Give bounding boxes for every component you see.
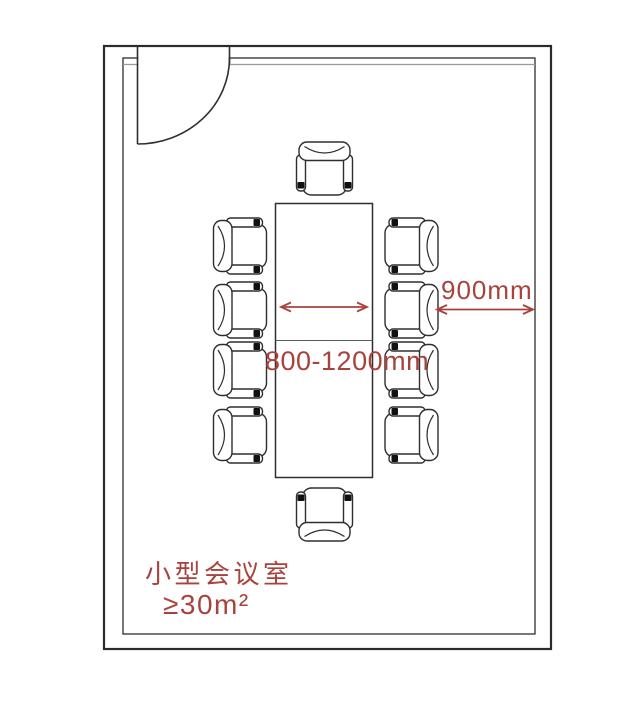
- floor-plan: 800-1200mm 900mm 小型会议室 ≥30m²: [0, 0, 640, 723]
- room-area-label: ≥30m²: [163, 589, 250, 620]
- door: [138, 46, 230, 144]
- chair-icon-top: [297, 142, 353, 195]
- room-name-label: 小型会议室: [145, 559, 293, 589]
- chair-icon-left-4: [214, 407, 267, 463]
- door-swing-arc: [138, 58, 230, 144]
- table-width-label: 800-1200mm: [265, 346, 429, 376]
- dimension-aisle-clearance: 900mm: [437, 275, 533, 314]
- chair-icon-right-4: [385, 407, 438, 463]
- conference-table: [276, 204, 373, 478]
- aisle-width-label: 900mm: [441, 275, 533, 305]
- floor-plan-canvas: 800-1200mm 900mm 小型会议室 ≥30m²: [0, 0, 640, 723]
- chair-icon-right-1: [385, 218, 438, 274]
- room-label: 小型会议室 ≥30m²: [145, 559, 293, 620]
- chair-icon-left-2: [214, 282, 267, 338]
- door-opening: [139, 52, 229, 69]
- chair-icon-left-1: [214, 218, 267, 274]
- chair-icon-bottom: [297, 488, 353, 541]
- chair-icon-right-2: [385, 282, 438, 338]
- chair-icon-left-3: [214, 342, 267, 398]
